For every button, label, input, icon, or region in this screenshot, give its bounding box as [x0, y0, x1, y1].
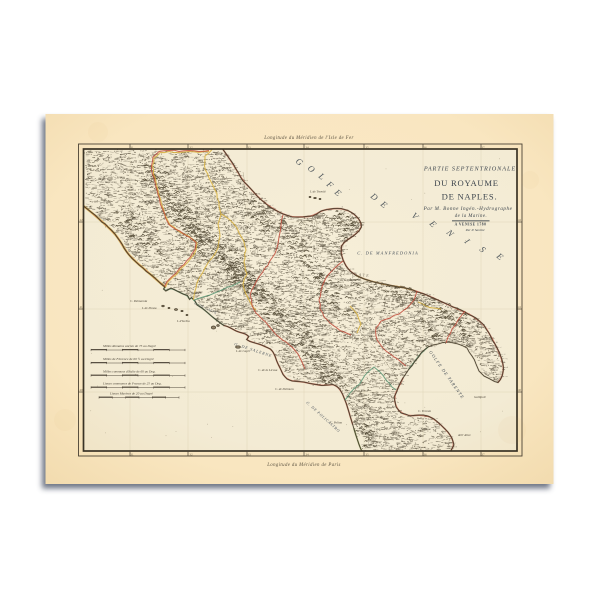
svg-text:Bovino: Bovino — [340, 240, 349, 243]
svg-text:Vietri: Vietri — [326, 320, 332, 323]
svg-text:Penne: Penne — [373, 311, 382, 314]
svg-text:Nardo: Nardo — [284, 360, 293, 363]
svg-text:C. de Palinuro: C. de Palinuro — [275, 387, 294, 391]
svg-text:37: 37 — [481, 452, 485, 456]
svg-text:Gallipoli: Gallipoli — [354, 224, 364, 227]
svg-text:Foggia: Foggia — [302, 367, 312, 370]
svg-text:Milles communs d'Italie de 60: Milles communs d'Italie de 60 au Deg. — [102, 370, 156, 374]
svg-text:31: 31 — [130, 145, 134, 149]
svg-text:40: 40 — [518, 388, 522, 392]
svg-text:Potenza: Potenza — [228, 262, 239, 265]
svg-text:Lecce: Lecce — [199, 187, 207, 190]
svg-text:34: 34 — [305, 452, 309, 456]
svg-text:C. Pelino: C. Pelino — [330, 421, 342, 425]
svg-text:Sarno: Sarno — [302, 234, 309, 237]
svg-text:Sulmona: Sulmona — [421, 428, 431, 431]
svg-text:36: 36 — [423, 452, 427, 456]
svg-text:Terracina: Terracina — [138, 254, 151, 258]
svg-text:Averse: Averse — [130, 218, 139, 221]
svg-text:Acerra: Acerra — [482, 337, 491, 340]
svg-text:Maiori: Maiori — [417, 339, 426, 342]
svg-text:Gravina: Gravina — [335, 250, 345, 253]
svg-text:42: 42 — [79, 218, 83, 222]
svg-text:Fondi: Fondi — [427, 321, 435, 324]
svg-text:de la Marine.: de la Marine. — [455, 214, 487, 219]
svg-text:41: 41 — [518, 305, 522, 309]
svg-text:C. DE MANFREDONIA: C. DE MANFREDONIA — [357, 251, 419, 256]
svg-text:Longitude du Méridien de Paris: Longitude du Méridien de Paris — [266, 463, 341, 468]
svg-text:I. de Ponza: I. de Ponza — [141, 306, 157, 310]
svg-text:Sessa: Sessa — [415, 320, 422, 323]
svg-text:32: 32 — [189, 452, 193, 456]
svg-text:C. Palmarola: C. Palmarola — [130, 299, 148, 303]
svg-text:Trani: Trani — [167, 249, 173, 252]
svg-text:Calvi: Calvi — [374, 428, 380, 431]
svg-text:Par P. Santini: Par P. Santini — [465, 228, 485, 232]
svg-text:Cava: Cava — [183, 174, 190, 177]
svg-text:I. de Capri: I. de Capri — [235, 349, 250, 353]
svg-text:Capua: Capua — [222, 181, 230, 184]
svg-text:Atri: Atri — [319, 307, 325, 310]
svg-text:dell' Alice: dell' Alice — [458, 433, 471, 437]
svg-text:Auletta: Auletta — [366, 332, 376, 335]
svg-text:Milles de Florence de 60 ½ au: Milles de Florence de 60 ½ au Degré — [102, 357, 154, 361]
svg-text:Pisticci: Pisticci — [267, 247, 277, 250]
svg-text:Alife: Alife — [222, 279, 229, 282]
svg-text:Lieues Marines de 20 au Degré: Lieues Marines de 20 au Degré — [109, 392, 153, 396]
svg-text:Milles Romains ancien de 75 au: Milles Romains ancien de 75 au Degré — [102, 344, 156, 348]
svg-text:Celano: Celano — [373, 435, 382, 438]
svg-text:Eboli: Eboli — [285, 285, 292, 288]
svg-text:36: 36 — [423, 145, 427, 149]
svg-text:Gaete: Gaete — [191, 291, 199, 295]
svg-text:Larino: Larino — [409, 349, 418, 352]
svg-text:40: 40 — [79, 388, 83, 392]
svg-text:Nocera: Nocera — [356, 407, 366, 410]
svg-text:Rieti: Rieti — [377, 294, 384, 297]
svg-text:Longitude du Méridien de l'Isl: Longitude du Méridien de l'Isle de Fer — [263, 136, 354, 141]
svg-text:C. de la Licosa: C. de la Licosa — [258, 368, 278, 372]
svg-text:C. Trionto: C. Trionto — [418, 409, 432, 413]
svg-text:Venosa: Venosa — [182, 186, 191, 189]
svg-text:Ferrandina: Ferrandina — [148, 183, 162, 186]
svg-text:32: 32 — [189, 145, 193, 149]
svg-text:Melfi: Melfi — [196, 277, 203, 280]
svg-text:Oria: Oria — [326, 377, 332, 380]
svg-text:Ascoli: Ascoli — [287, 315, 295, 318]
svg-text:Barletta: Barletta — [334, 284, 344, 287]
svg-text:Alatri: Alatri — [205, 204, 213, 207]
svg-text:Par M. Bonne Ingén.-Hydrograph: Par M. Bonne Ingén.-Hydrographe — [423, 206, 513, 212]
svg-text:DU ROYAUME: DU ROYAUME — [434, 178, 499, 188]
svg-text:Ostuni: Ostuni — [466, 344, 474, 347]
svg-text:Sezze: Sezze — [492, 346, 499, 349]
svg-text:Cariati: Cariati — [397, 422, 405, 425]
svg-text:Trivento: Trivento — [324, 283, 334, 286]
svg-text:31: 31 — [130, 452, 134, 456]
svg-text:Caiazzo: Caiazzo — [312, 216, 322, 219]
svg-text:Scalea: Scalea — [147, 265, 155, 268]
svg-text:Atina: Atina — [203, 238, 211, 241]
svg-text:Otranto: Otranto — [376, 394, 385, 397]
svg-text:Agropoli: Agropoli — [237, 324, 248, 327]
svg-text:Arpino: Arpino — [398, 330, 407, 333]
svg-text:Avellino: Avellino — [229, 317, 240, 320]
svg-text:Tursi: Tursi — [233, 267, 239, 270]
svg-text:Saponara: Saponara — [307, 310, 318, 313]
svg-text:Tarente: Tarente — [212, 243, 221, 246]
svg-text:Chieti: Chieti — [327, 346, 334, 349]
svg-text:Isernia: Isernia — [172, 178, 182, 181]
svg-text:Teano: Teano — [295, 313, 302, 316]
svg-text:Rossano: Rossano — [345, 309, 356, 312]
svg-text:Anagni: Anagni — [489, 369, 498, 372]
svg-text:Altamura: Altamura — [427, 329, 439, 332]
svg-text:Bisceglia: Bisceglia — [207, 260, 218, 263]
svg-text:I. de Tremiti: I. de Tremiti — [309, 190, 326, 194]
svg-text:Itri: Itri — [262, 227, 267, 230]
svg-text:Veroli: Veroli — [333, 304, 340, 307]
svg-text:Amalfi: Amalfi — [387, 374, 396, 377]
svg-text:33: 33 — [247, 452, 251, 456]
svg-text:Teggiano: Teggiano — [344, 279, 355, 282]
svg-text:Polla: Polla — [152, 196, 160, 199]
svg-text:DE NAPLES.: DE NAPLES. — [442, 192, 498, 202]
svg-text:Benevento: Benevento — [105, 181, 117, 184]
svg-text:35: 35 — [365, 452, 369, 456]
svg-text:Venafro: Venafro — [428, 325, 437, 328]
svg-text:Monopoli: Monopoli — [213, 178, 225, 181]
svg-text:Aquila: Aquila — [184, 287, 193, 290]
svg-text:41: 41 — [79, 305, 83, 309]
svg-text:Conza: Conza — [408, 316, 416, 319]
svg-text:Lieues communes de France de 2: Lieues communes de France de 25 au Deg. — [102, 382, 162, 386]
svg-text:Caserta: Caserta — [127, 179, 136, 182]
svg-text:Cassano: Cassano — [224, 256, 234, 259]
svg-text:Gallipoli: Gallipoli — [474, 395, 486, 399]
svg-text:Salerno: Salerno — [412, 325, 421, 328]
svg-text:42: 42 — [518, 218, 522, 222]
svg-text:33: 33 — [247, 145, 251, 149]
svg-text:37: 37 — [481, 145, 485, 149]
svg-text:I. d'Ischia: I. d'Ischia — [176, 319, 190, 323]
svg-text:Nola: Nola — [322, 312, 329, 315]
svg-text:Sora: Sora — [412, 359, 418, 362]
svg-text:A VENISE 1780: A VENISE 1780 — [455, 223, 487, 227]
svg-text:PARTIE SEPTENTRIONALE: PARTIE SEPTENTRIONALE — [423, 166, 516, 173]
svg-text:34: 34 — [305, 145, 309, 149]
svg-text:Ferentino: Ferentino — [381, 348, 394, 351]
svg-text:35: 35 — [365, 145, 369, 149]
svg-text:Bari: Bari — [215, 274, 220, 277]
